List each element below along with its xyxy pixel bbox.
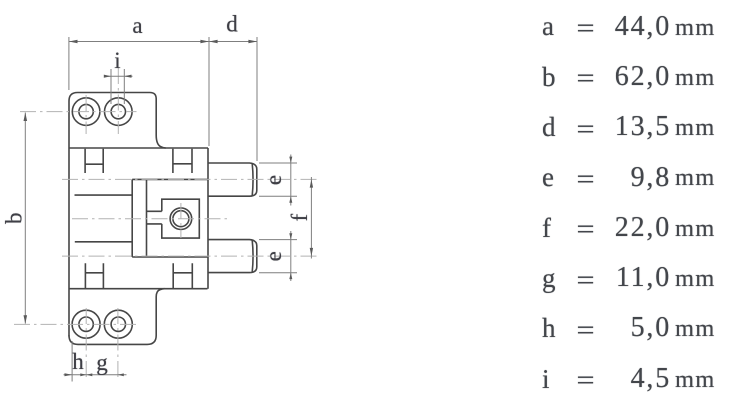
svg-text:i: i (114, 48, 120, 73)
svg-text:g: g (96, 350, 108, 375)
svg-text:b: b (2, 213, 27, 225)
svg-text:e: e (261, 175, 286, 185)
svg-text:d: d (226, 12, 238, 37)
svg-text:h: h (72, 349, 84, 374)
svg-text:f: f (287, 214, 312, 222)
svg-text:e: e (261, 251, 286, 261)
svg-text:a: a (132, 13, 142, 38)
